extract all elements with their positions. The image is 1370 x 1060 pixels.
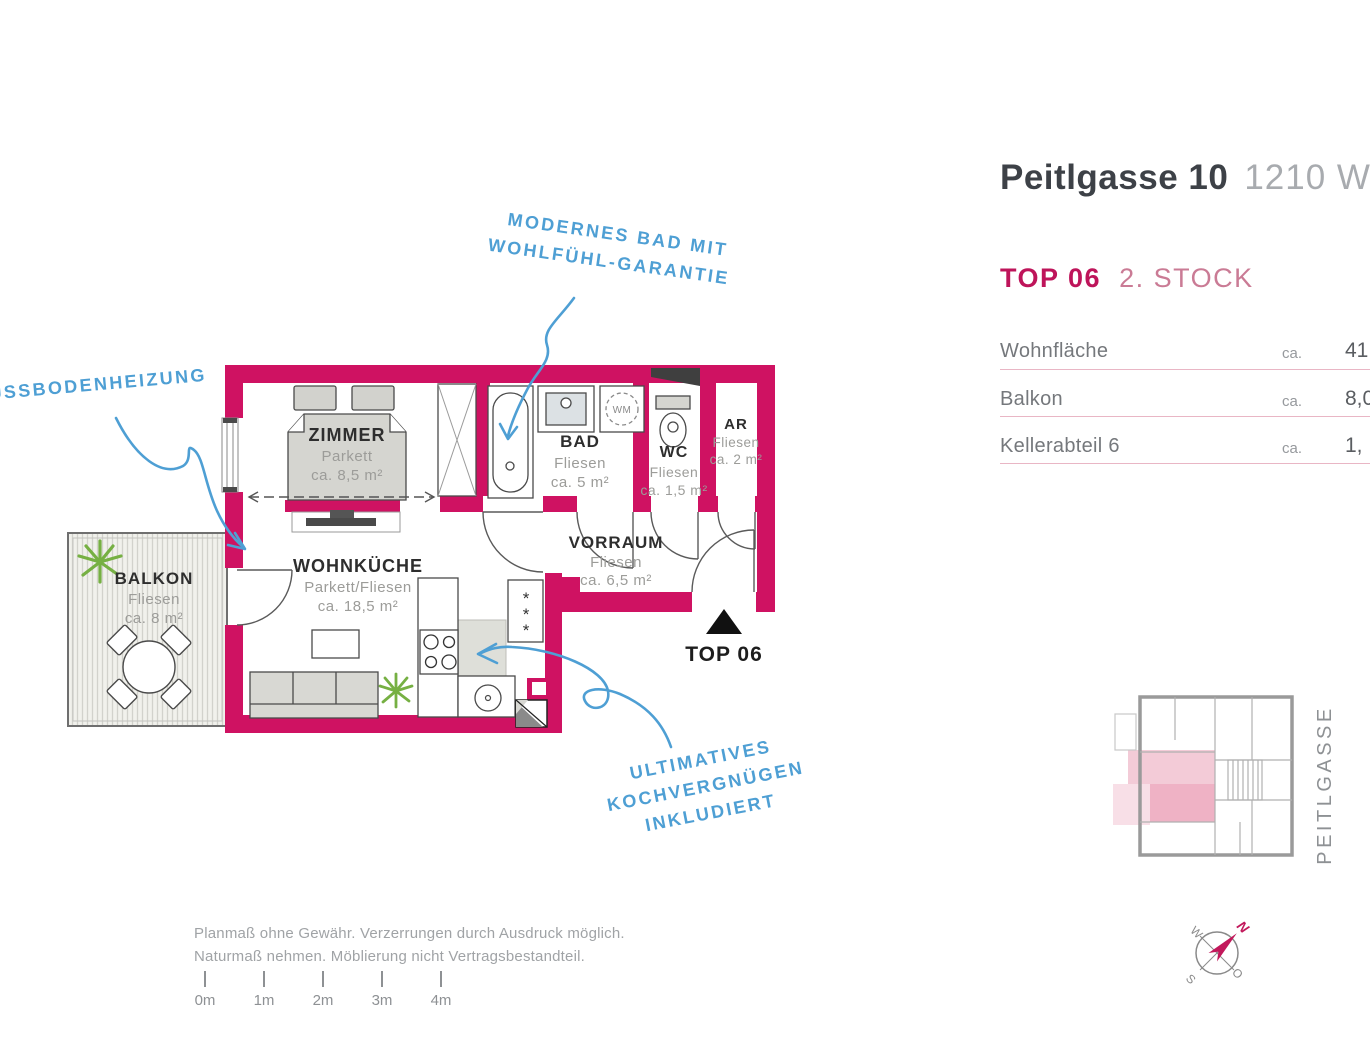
scale-label: 1m [244,992,284,1009]
scale-label: 4m [421,992,461,1009]
disclaimer-line: Planmaß ohne Gewähr. Verzerrungen durch … [194,922,625,945]
scale-label: 3m [362,992,402,1009]
floorplan-page: { "header": { "building": "Peitlgasse 10… [0,0,1370,1060]
disclaimer-line: Naturmaß nehmen. Möblierung nicht Vertra… [194,945,625,968]
kitchen-arrow [478,644,671,747]
scale-label: 0m [185,992,225,1009]
bathroom-arrow [500,298,574,439]
scale-tick [381,971,383,987]
compass-north: N [1234,918,1253,937]
unit-balcony-highlight [1113,784,1150,825]
scale-tick [263,971,265,987]
unit-highlight-lower [1140,784,1215,822]
compass-south: S [1183,971,1199,987]
scale-label: 2m [303,992,343,1009]
scale-tick [322,971,324,987]
street-name: PEITLGASSE [1314,705,1336,865]
disclaimer: Planmaß ohne Gewähr. Verzerrungen durch … [194,922,625,968]
scale-tick [440,971,442,987]
compass-rose: N S W O [1160,895,1280,1015]
scale-tick [204,971,206,987]
heating-arrow [116,418,245,549]
site-plan: PEITLGASSE [1095,680,1357,880]
neighbor-balcony [1115,714,1136,750]
